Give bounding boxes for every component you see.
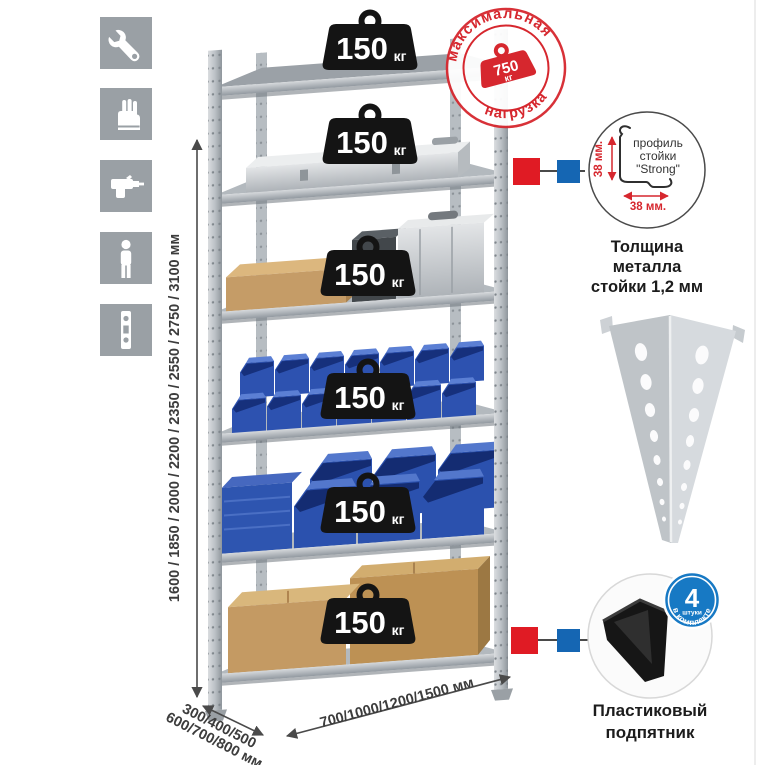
- product-infographic: 150 кг 150 кг 150 кг 150 кг 150 кг 150 к…: [0, 0, 765, 765]
- shelf-load-badge: 150 кг: [323, 13, 418, 71]
- callout-marker-blue: [557, 160, 580, 183]
- svg-text:150: 150: [334, 257, 386, 292]
- svg-text:150: 150: [336, 125, 388, 160]
- height-dimension: 1600 / 1850 / 2000 / 2200 / 2350 / 2550 …: [167, 140, 197, 697]
- svg-text:профиль: профиль: [633, 136, 683, 150]
- svg-text:кг: кг: [392, 274, 405, 290]
- svg-text:4: 4: [685, 583, 700, 613]
- svg-text:штуки: штуки: [682, 610, 702, 617]
- callout-marker-red: [513, 158, 540, 185]
- foot-detail-circle: 4 штуки в комплекте: [588, 572, 720, 698]
- profile-caption: Толщина металла стойки 1,2 мм: [583, 237, 711, 297]
- shelf-load-badge: 150 кг: [323, 107, 418, 165]
- kit-badge: 4 штуки в комплекте: [664, 572, 720, 628]
- svg-text:700/1000/1200/1500 мм: 700/1000/1200/1500 мм: [318, 675, 475, 731]
- svg-text:стойки: стойки: [640, 149, 677, 163]
- svg-text:"Strong": "Strong": [636, 162, 680, 176]
- svg-text:150: 150: [336, 31, 388, 66]
- callout-marker-blue: [557, 629, 580, 652]
- svg-text:38 мм.: 38 мм.: [630, 201, 666, 213]
- svg-text:кг: кг: [392, 622, 405, 638]
- svg-text:150: 150: [334, 494, 386, 529]
- rack-illustration: 150 кг 150 кг 150 кг 150 кг 150 кг 150 к…: [0, 0, 765, 765]
- closed-blue-crate: [222, 472, 302, 554]
- svg-text:1600 / 1850 / 2000 / 2200 / 23: 1600 / 1850 / 2000 / 2200 / 2350 / 2550 …: [167, 234, 183, 602]
- svg-text:150: 150: [334, 380, 386, 415]
- svg-text:кг: кг: [392, 511, 405, 527]
- svg-text:кг: кг: [392, 397, 405, 413]
- svg-text:кг: кг: [394, 48, 407, 64]
- callout-foot: [511, 627, 592, 654]
- svg-text:150: 150: [334, 605, 386, 640]
- callout-profile: [513, 158, 585, 185]
- foot-caption: Пластиковый подпятник: [575, 700, 725, 744]
- svg-text:кг: кг: [394, 142, 407, 158]
- callout-marker-red: [511, 627, 538, 654]
- post-3d-figure: [600, 315, 745, 543]
- rack-foot: [491, 688, 513, 701]
- width-dimension: 700/1000/1200/1500 мм: [287, 675, 510, 736]
- svg-text:38 мм.: 38 мм.: [593, 141, 605, 177]
- profile-detail-circle: 38 мм. 38 мм. профиль стойки "Strong": [589, 112, 705, 228]
